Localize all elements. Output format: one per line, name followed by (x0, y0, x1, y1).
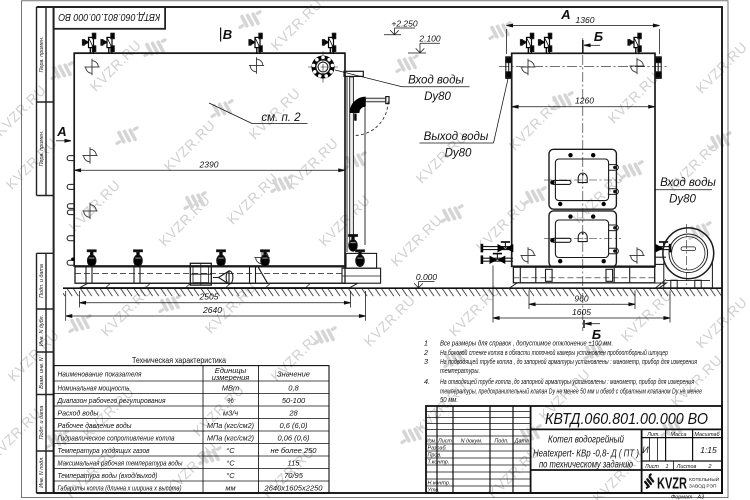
svg-text:2: 2 (708, 464, 712, 470)
svg-text:см. п. 2: см. п. 2 (261, 112, 301, 124)
svg-text:°С: °С (226, 446, 235, 455)
svg-text:2505: 2505 (199, 292, 219, 302)
svg-text:+2.250: +2.250 (391, 18, 418, 28)
svg-text:Утв.: Утв. (427, 488, 440, 494)
svg-text:по техническому заданию: по техническому заданию (539, 460, 633, 471)
svg-text:Лит.: Лит. (646, 432, 660, 438)
svg-text:KVZR.RU: KVZR.RU (605, 69, 663, 127)
svg-text:2: 2 (423, 348, 428, 357)
svg-text:1605: 1605 (572, 307, 591, 317)
svg-text:Подп. и дата: Подп. и дата (39, 264, 45, 298)
svg-text:И: И (642, 445, 649, 455)
svg-text:Подп. и дата: Подп. и дата (39, 406, 45, 440)
svg-text:Диапазон рабочего регулировани: Диапазон рабочего регулирования (57, 396, 166, 405)
svg-text:KVZR.RU: KVZR.RU (284, 135, 342, 193)
svg-text:КВТД.060.801.00.000 ВО: КВТД.060.801.00.000 ВО (545, 411, 708, 428)
svg-text:А: А (56, 124, 66, 139)
svg-text:Максимальная рабочая температу: Максимальная рабочая температура воды (58, 459, 183, 468)
svg-text:температуры, предохранительный: температуры, предохранительный клапан Dy… (440, 386, 702, 395)
svg-text:Лист: Лист (644, 464, 659, 470)
svg-text:Dy80: Dy80 (669, 194, 696, 206)
svg-text:Наименование показателя: Наименование показателя (58, 370, 142, 379)
svg-text:А: А (560, 7, 570, 22)
svg-text:Dy80: Dy80 (445, 147, 472, 159)
svg-text:В: В (223, 27, 232, 42)
svg-text:1: 1 (666, 464, 669, 470)
svg-text:Техническая характеристика: Техническая характеристика (132, 356, 227, 365)
svg-text:Вход воды: Вход воды (408, 75, 464, 87)
svg-text:Инв. N дубл.: Инв. N дубл. (39, 315, 45, 346)
svg-text:Все размеры для справок , допу: Все размеры для справок , допустимое отк… (440, 339, 613, 348)
svg-text:KVZR.RU: KVZR.RU (87, 37, 145, 95)
svg-text:4.: 4. (424, 377, 430, 386)
svg-text:Б: Б (594, 29, 603, 44)
svg-text:KVZR.RU: KVZR.RU (224, 170, 282, 228)
svg-text:2640: 2640 (202, 305, 222, 315)
svg-text:°С: °С (226, 471, 235, 480)
svg-text:Heatexpert- КВр -0,8- Д ( ПТ ): Heatexpert- КВр -0,8- Д ( ПТ ) (533, 448, 639, 459)
svg-text:°С: °С (226, 459, 235, 468)
svg-text:Значение: Значение (277, 370, 310, 379)
svg-text:Перв. примен.: Перв. примен. (39, 37, 45, 73)
svg-text:Пров.: Пров. (428, 453, 442, 459)
svg-text:Dy80: Dy80 (424, 91, 451, 103)
svg-text:Подп.: Подп. (494, 439, 508, 445)
svg-text:2390: 2390 (199, 159, 219, 169)
svg-text:KVZR.RU: KVZR.RU (268, 0, 326, 53)
svg-text:KVZR.RU: KVZR.RU (0, 405, 44, 463)
svg-text:KVZR.RU: KVZR.RU (156, 192, 214, 250)
svg-text:Листов: Листов (676, 464, 697, 470)
svg-text:Взам. инв. N: Взам. инв. N (39, 357, 45, 389)
svg-text:МПа (кгс/см2): МПа (кгс/см2) (207, 434, 254, 443)
svg-text:KVZR.RU: KVZR.RU (361, 292, 419, 350)
svg-text:Т.контр.: Т.контр. (428, 460, 450, 466)
svg-text:1:15: 1:15 (700, 445, 717, 455)
svg-text:КОТЕЛЬНЫЙ: КОТЕЛЬНЫЙ (689, 475, 720, 483)
svg-text:%: % (227, 396, 234, 405)
svg-text:Номинальная мощность: Номинальная мощность (58, 384, 130, 393)
svg-text:На подводящей трубе котла ,: На подводящей трубе котла , до запорной … (440, 357, 697, 366)
svg-text:1360: 1360 (576, 15, 595, 25)
svg-text:70/95: 70/95 (284, 471, 304, 480)
svg-text:Расход воды: Расход воды (58, 409, 99, 418)
svg-text:KVZR.RU: KVZR.RU (506, 96, 564, 154)
svg-text:Инв. N подл.: Инв. N подл. (39, 456, 45, 488)
svg-text:Масса: Масса (671, 432, 687, 438)
svg-text:Формат: Формат (671, 495, 693, 500)
svg-text:Дата: Дата (514, 439, 529, 445)
svg-text:Габариты котла (длинна х ширин: Габариты котла (длинна х ширина х высота… (58, 484, 182, 493)
svg-text:50 мм.: 50 мм. (440, 395, 458, 404)
svg-text:МПа (кгс/см2): МПа (кгс/см2) (207, 421, 254, 430)
svg-text:м3/ч: м3/ч (223, 409, 238, 418)
svg-text:960: 960 (574, 293, 588, 303)
svg-text:115: 115 (288, 459, 301, 468)
svg-text:Разраб.: Разраб. (428, 446, 448, 452)
svg-text:А3: А3 (697, 495, 705, 500)
svg-text:0,06 (0,6): 0,06 (0,6) (277, 434, 310, 443)
svg-text:мм: мм (225, 484, 235, 493)
svg-text:Масштаб: Масштаб (694, 432, 720, 438)
svg-text:Перв. примен.: Перв. примен. (39, 131, 45, 167)
svg-text:KVZR.RU: KVZR.RU (388, 212, 446, 270)
svg-text:1: 1 (424, 339, 428, 348)
svg-text:Температура уходящих газов: Температура уходящих газов (58, 446, 150, 455)
svg-text:не более 250: не более 250 (271, 446, 318, 455)
svg-text:Котел водогрейный: Котел водогрейный (548, 434, 624, 445)
svg-text:МВт: МВт (222, 384, 240, 393)
svg-text:Гидравлическое сопротивление к: Гидравлическое сопротивление котла (58, 434, 175, 443)
svg-text:KVZR.RU: KVZR.RU (3, 135, 61, 193)
svg-text:На боковой стенке котла в обла: На боковой стенке котла в области топочн… (440, 348, 668, 357)
svg-text:3: 3 (424, 357, 428, 366)
svg-text:0,6 (6,0): 0,6 (6,0) (280, 421, 308, 430)
svg-text:Лист: Лист (437, 439, 452, 445)
svg-text:2640х1605х2250: 2640х1605х2250 (263, 484, 323, 493)
svg-text:1260: 1260 (575, 96, 594, 106)
svg-text:Температура воды (вход/выход): Температура воды (вход/выход) (58, 471, 158, 480)
svg-text:температуры.: температуры. (440, 366, 480, 375)
svg-text:28: 28 (288, 409, 298, 418)
svg-text:0.000: 0.000 (416, 272, 438, 282)
svg-text:2.100: 2.100 (418, 33, 441, 43)
svg-text:Изм.: Изм. (426, 439, 436, 445)
svg-text:Вход воды: Вход воды (660, 177, 716, 189)
svg-text:50-100: 50-100 (282, 396, 306, 405)
svg-text:0,8: 0,8 (288, 384, 299, 393)
svg-text:KVZR: KVZR (657, 476, 687, 493)
svg-text:ЗАВОД РЭП: ЗАВОД РЭП (689, 484, 717, 490)
svg-text:Рабочее давление воды: Рабочее давление воды (58, 421, 132, 430)
svg-text:измерения: измерения (212, 373, 250, 382)
svg-text:Выход воды: Выход воды (424, 131, 489, 143)
svg-text:КВТД.060.801.00.000 ВО: КВТД.060.801.00.000 ВО (58, 11, 160, 23)
svg-text:На отводящей трубе котла ,до з: На отводящей трубе котла ,до запорной ар… (440, 377, 694, 386)
svg-text:N докум.: N докум. (461, 439, 483, 445)
svg-text:Н.контр.: Н.контр. (428, 481, 451, 487)
